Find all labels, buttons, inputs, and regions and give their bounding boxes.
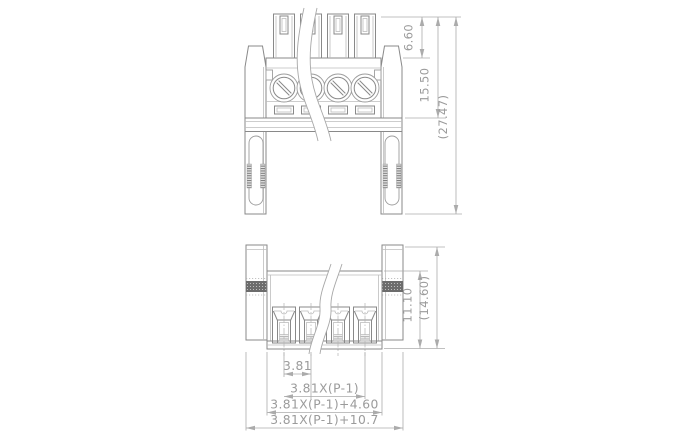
dimension-pole-span: 3.81X(P-1)	[284, 382, 365, 397]
dim-label-pole-span: 3.81X(P-1)	[290, 382, 359, 396]
front-view: 6.60 15.50 (27.47)	[245, 8, 462, 214]
dim-label-body-height: 11.10	[401, 288, 415, 323]
dimension-plug-height: 6.60	[402, 17, 423, 58]
knurl-band	[246, 281, 267, 292]
drawing-canvas: 6.60 15.50 (27.47)	[0, 0, 680, 440]
dim-label-overall-height: (27.47)	[436, 95, 450, 140]
plug-towers	[274, 14, 376, 58]
dimension-overall-width: 3.81X(P-1)+10.7	[246, 413, 403, 428]
dim-label-bottom-overall-height: (14.60)	[417, 276, 431, 321]
dim-label-plug-height: 6.60	[402, 24, 416, 51]
dim-label-pitch: 3.81	[283, 359, 312, 373]
dimension-pitch: 3.81	[283, 359, 312, 374]
dimension-body-width: 3.81X(P-1)+4.60	[267, 398, 382, 413]
flange-post-left	[246, 245, 267, 340]
dim-label-header-height: 15.50	[418, 68, 432, 103]
flange-slots	[247, 136, 401, 205]
dimension-header-height: 15.50	[418, 17, 439, 118]
bottom-view: 11.10 (14.60) 3.81 3.81X(P-1) 3.81X(P-1)…	[246, 245, 445, 431]
dim-label-body-width: 3.81X(P-1)+4.60	[270, 398, 379, 412]
dimension-overall-height: (27.47)	[436, 17, 456, 214]
dim-label-overall-width: 3.81X(P-1)+10.7	[270, 413, 379, 427]
technical-drawing: 6.60 15.50 (27.47)	[0, 0, 680, 440]
